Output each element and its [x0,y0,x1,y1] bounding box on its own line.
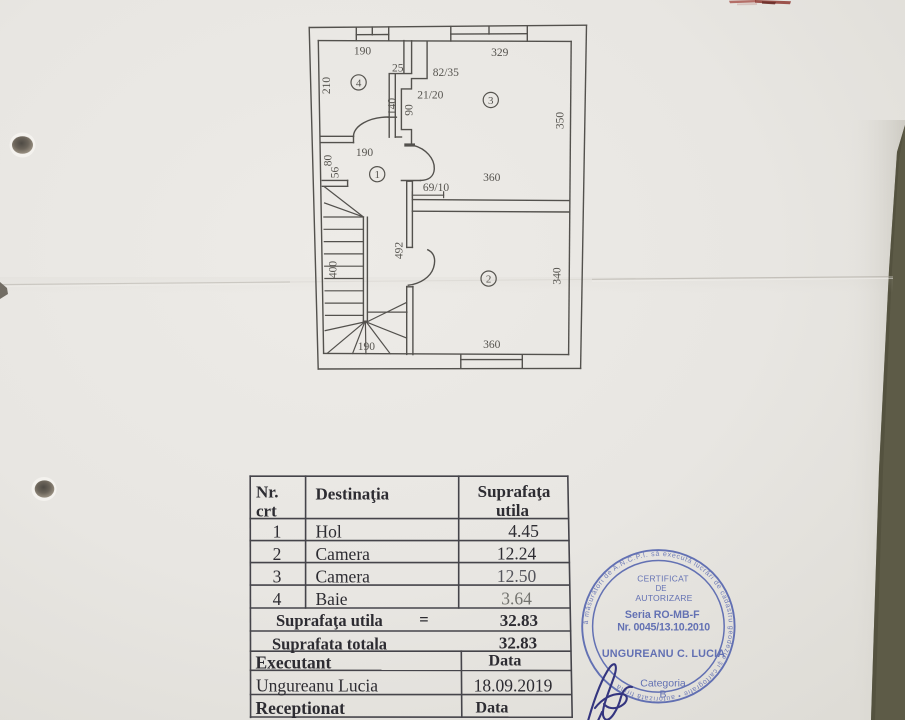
svg-text:90: 90 [403,104,415,116]
svg-text:400: 400 [327,261,339,279]
svg-text:360: 360 [483,172,501,184]
svg-text:Nr. 0045/13.10.2010: Nr. 0045/13.10.2010 [617,622,710,634]
svg-text:3.64: 3.64 [501,589,532,609]
svg-text:Nr.: Nr. [256,483,279,502]
svg-text:21/20: 21/20 [417,90,443,102]
svg-text:1: 1 [374,169,380,181]
svg-text:Ungureanu Lucia: Ungureanu Lucia [256,675,378,695]
svg-text:360: 360 [483,339,501,351]
svg-text:AUTORIZARE: AUTORIZARE [635,593,692,603]
svg-text:3: 3 [488,95,494,107]
svg-text:Camera: Camera [316,567,371,587]
svg-text:2: 2 [273,544,282,564]
svg-text:Executant: Executant [256,652,332,672]
svg-text:492: 492 [393,242,405,260]
svg-text:Suprafata totala: Suprafata totala [272,634,387,653]
svg-text:UNGUREANU C. LUCIA: UNGUREANU C. LUCIA [602,648,726,660]
svg-text:190: 190 [356,147,374,159]
svg-text:340: 340 [551,267,563,285]
svg-text:Suprafaţa utila: Suprafaţa utila [276,611,383,630]
svg-text:350: 350 [554,112,566,130]
svg-text:25: 25 [392,63,404,75]
svg-text:210: 210 [321,77,333,95]
svg-text:32.83: 32.83 [499,634,537,653]
svg-text:Baie: Baie [316,589,348,609]
svg-text:329: 329 [491,47,509,59]
svg-text:Hol: Hol [316,522,342,542]
svg-text:190: 190 [358,341,376,353]
svg-text:Camera: Camera [316,544,371,564]
svg-text:82/35: 82/35 [433,67,459,79]
svg-text:utila: utila [496,501,530,520]
svg-text:4: 4 [356,77,362,89]
svg-text:1: 1 [273,522,282,542]
svg-text:4.45: 4.45 [508,521,539,541]
svg-text:12.50: 12.50 [497,566,537,586]
svg-text:=: = [419,610,428,629]
svg-text:190: 190 [354,46,372,58]
svg-text:Destinaţia: Destinaţia [316,485,390,504]
svg-text:CERTIFICAT: CERTIFICAT [637,574,689,584]
svg-text:Data: Data [476,700,509,717]
svg-text:12.24: 12.24 [497,544,537,564]
svg-text:4: 4 [273,589,282,609]
svg-text:56: 56 [330,167,342,179]
svg-text:2: 2 [486,274,492,286]
svg-text:18.09.2019: 18.09.2019 [474,676,553,696]
svg-text:Data: Data [489,652,522,669]
svg-text:Suprafaţa: Suprafaţa [478,482,551,501]
svg-text:3: 3 [273,567,282,587]
svg-text:140: 140 [386,98,398,116]
svg-text:32.83: 32.83 [500,611,538,630]
svg-text:Receptionat: Receptionat [256,698,346,718]
svg-text:Seria RO-MB-F: Seria RO-MB-F [625,609,700,621]
svg-text:69/10: 69/10 [423,182,449,194]
svg-text:crt: crt [256,502,277,521]
svg-text:80: 80 [323,155,335,167]
svg-text:B: B [659,689,666,701]
svg-text:DE: DE [656,584,667,593]
